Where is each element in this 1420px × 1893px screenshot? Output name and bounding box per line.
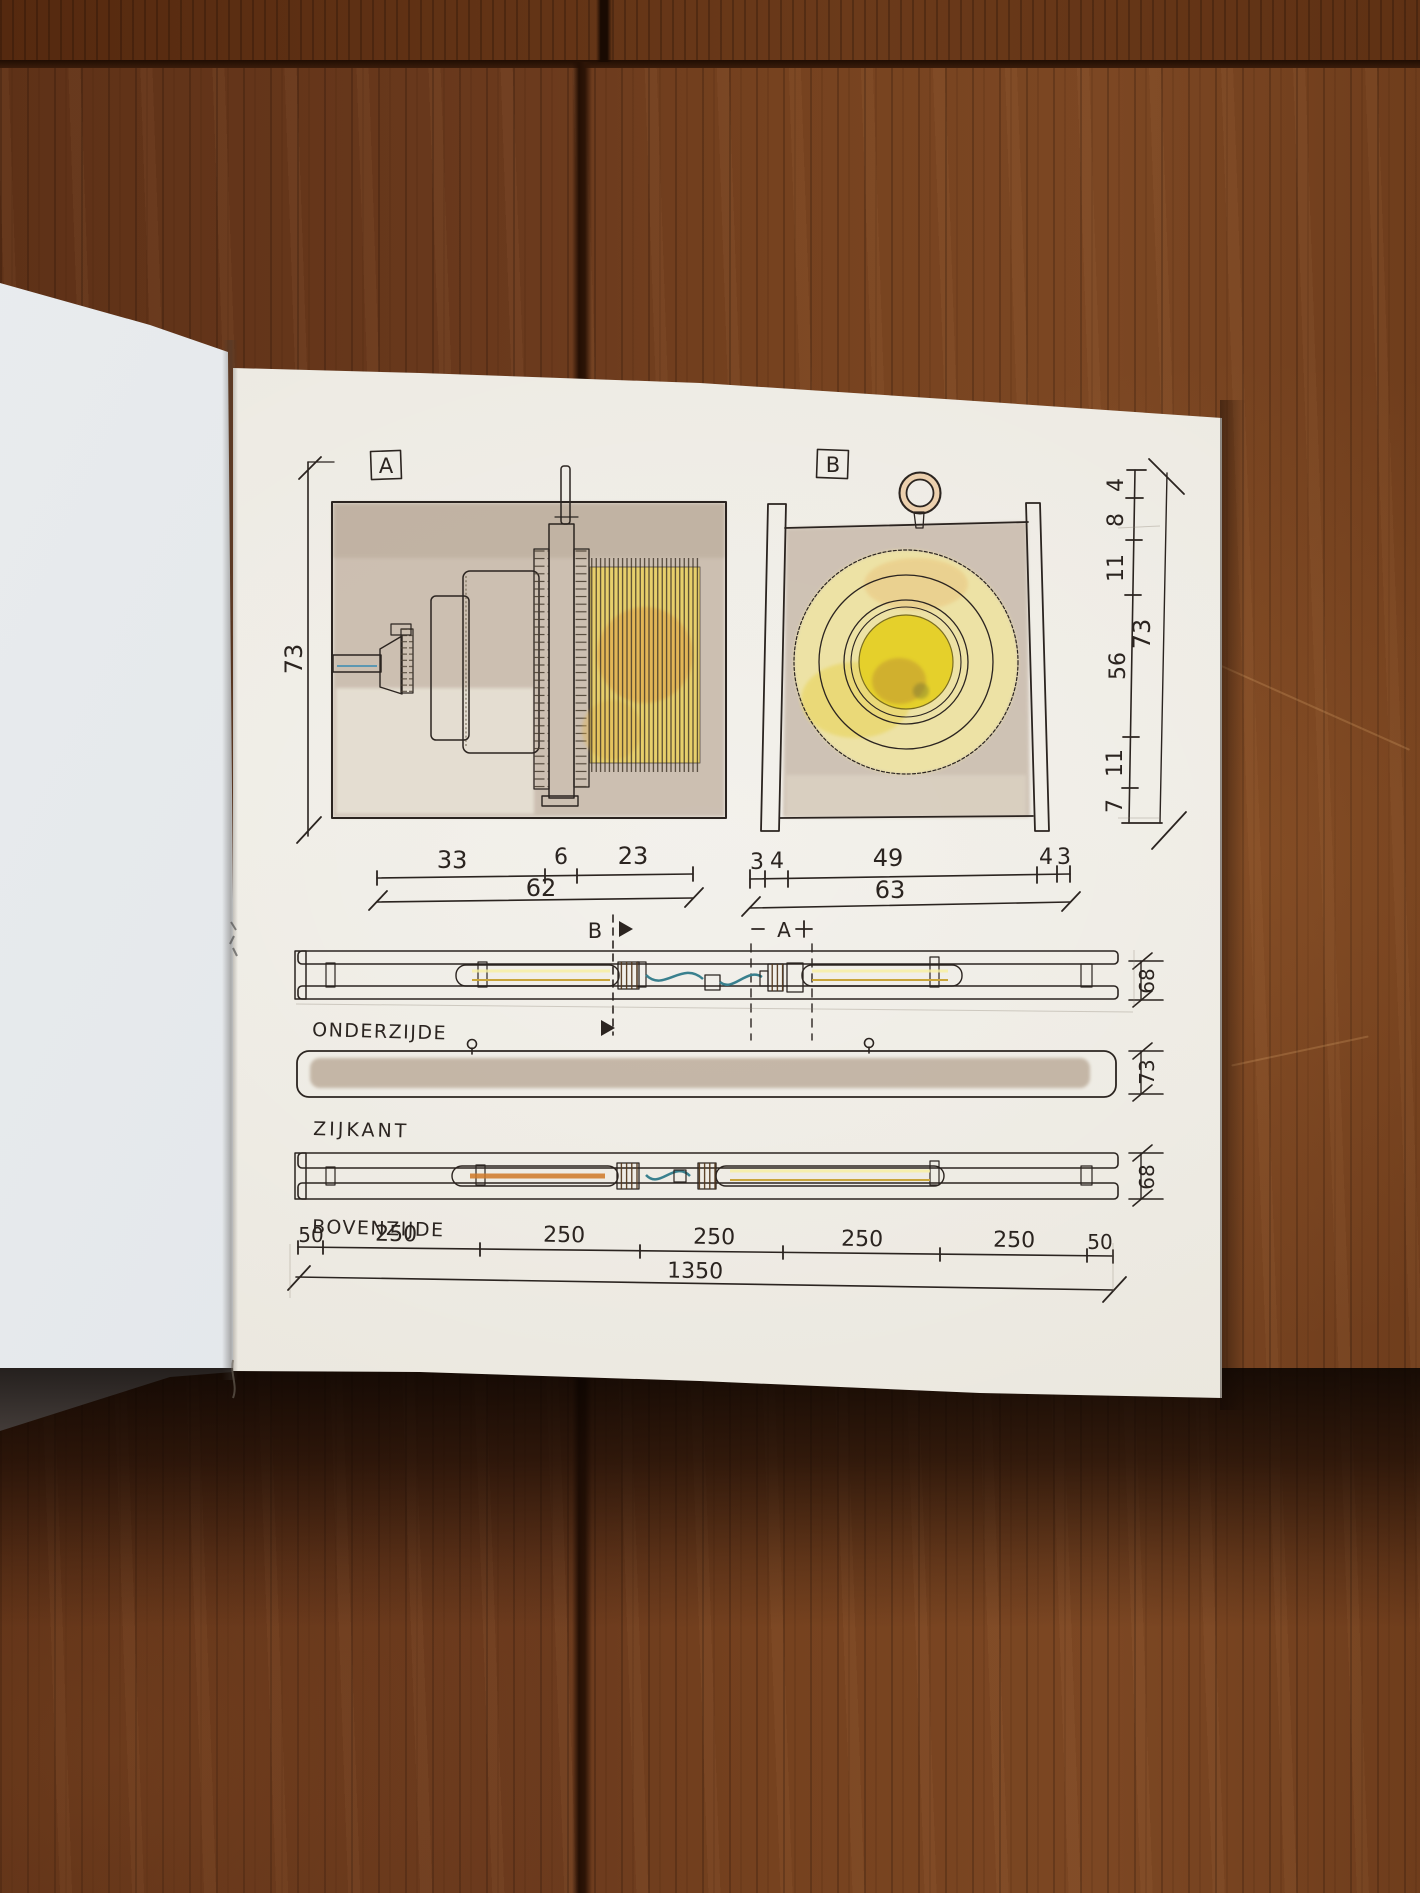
dim-bottom-seg: 50 [1087,1230,1112,1254]
strip-side-dim: 73 [1135,1059,1159,1084]
dim-right-seg: 8 [1104,513,1129,527]
dim-left-height-value: 73 [280,644,308,675]
view-a-label-text: A [379,454,394,478]
wire-connector [705,975,720,990]
dim-bottom-seg: 50 [298,1223,323,1247]
strip-caption: ONDERZIJDE [312,1019,447,1045]
strip-side-dim: 68 [1135,968,1159,993]
dim-right-seg: 7 [1103,799,1128,813]
dim-bottom-seg: 250 [375,1222,417,1248]
notebook-photo-scene: A 73 [0,0,1420,1893]
wire [646,1171,690,1179]
dim-right-seg: 11 [1104,554,1129,582]
dim-b-seg: 3 [750,850,764,875]
eye-hook [865,1039,874,1048]
dim-a-seg: 23 [618,842,649,870]
rail-bottom [298,986,1118,999]
lamp-tube [802,965,962,986]
binding-stitches [230,922,237,1398]
dim-right-seg: 11 [1103,749,1128,777]
dim-b-total: 63 [875,876,906,904]
dim-a-seg: 6 [554,845,568,870]
hanging-ring-fill [903,476,937,510]
dim-left-height: 73 [280,457,334,843]
technical-sketch: A 73 [0,0,1420,1893]
dim-bottom-seg: 250 [693,1225,735,1251]
dim-right-seg: 56 [1106,652,1131,680]
strip-zijkant: 73 ZIJKANT [297,1039,1163,1143]
view-a-section-drawing [332,466,726,818]
view-a-label: A [371,450,402,479]
rail-top [298,951,1118,964]
view-b-label-text: B [826,453,840,477]
dim-b-seg: 49 [873,844,904,872]
dims-right-column: 4 8 11 56 11 7 73 [1103,459,1186,849]
section-b-text: B [588,919,602,943]
frame-rail-left [761,504,786,831]
section-a-text: A [777,918,791,942]
dim-bottom-total: 1350 [667,1259,723,1285]
section-b-arrow [619,921,633,937]
dim-a-total: 62 [526,874,557,902]
dim-bottom-seg: 250 [543,1223,585,1249]
dims-bottom: 50 250 250 250 250 250 50 1350 [288,1222,1126,1302]
dim-right-seg: 4 [1104,478,1129,492]
dim-b-seg: 4 [770,849,784,874]
view-b-front-drawing [761,473,1049,832]
dims-under-view-b: 3 4 49 4 3 63 [742,844,1080,916]
dim-b-seg: 4 [1039,845,1053,870]
dim-bottom-seg: 250 [993,1228,1035,1254]
strip-onderzijde: 68 ONDERZIJDE [295,951,1163,1045]
dim-bottom-seg: 250 [841,1227,883,1253]
dim-right-total: 73 [1128,619,1156,650]
strip-caption: ZIJKANT [313,1118,410,1143]
dim-b-seg: 3 [1057,845,1071,870]
strip-side-dim: 68 [1135,1164,1159,1189]
lamp-tube [456,965,619,986]
dim-a-seg: 33 [437,846,468,875]
wire [646,973,703,981]
view-b-label: B [817,449,849,478]
wire [720,975,762,985]
dims-under-view-a: 33 6 23 62 [369,842,703,910]
eye-hook [468,1040,477,1049]
